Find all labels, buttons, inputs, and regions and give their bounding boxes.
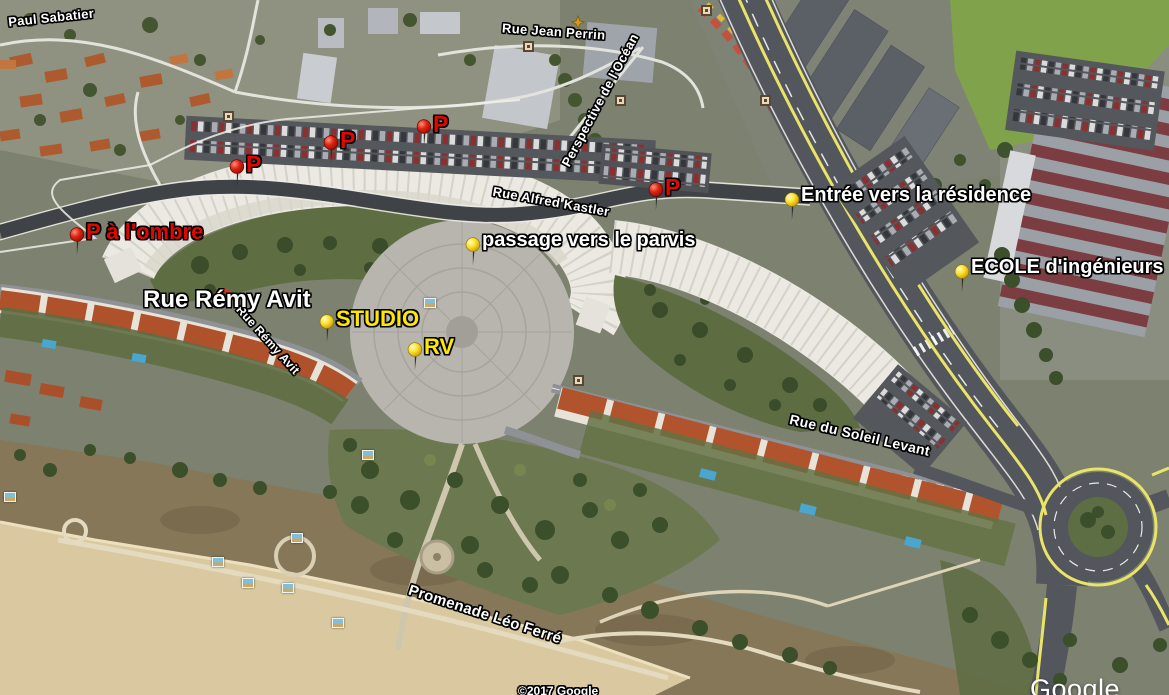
photo-icon[interactable] [362,450,374,460]
placemark-passage[interactable]: passage vers le parvis [463,237,483,267]
placemark-entree-residence[interactable]: Entrée vers la résidence [782,192,802,222]
place-label-rue-remy-avit: Rue Rémy Avit [143,286,311,314]
placemark-label: P [665,174,680,201]
poi-square-icon[interactable] [760,95,771,106]
landmark-icon[interactable] [571,15,585,29]
poi-square-icon[interactable] [573,375,584,386]
red-pushpin-icon [646,182,666,212]
placemark-ecole-ingenieurs[interactable]: ECOLE d'ingénieurs [952,264,972,294]
satellite-map[interactable]: Paul Sabatier Rue Jean Perrin Perspectiv… [0,0,1169,695]
placemark-label: STUDIO [336,306,419,332]
copyright-attribution: ©2017 Google [518,684,598,695]
photo-icon[interactable] [424,298,436,308]
placemark-label: P à l'ombre [86,219,203,245]
placemark-label: P [340,127,355,154]
yellow-pushpin-icon [405,342,425,372]
yellow-pushpin-icon [782,192,802,222]
yellow-pushpin-icon [317,314,337,344]
photo-icon[interactable] [291,533,303,543]
placemark-rv[interactable]: RV [405,342,425,372]
placemark-studio[interactable]: STUDIO [317,314,337,344]
yellow-pushpin-icon [952,264,972,294]
red-pushpin-icon [414,119,434,149]
placemark-label: P [246,151,261,178]
photo-icon[interactable] [4,492,16,502]
placemark-parking-4[interactable]: P [646,182,666,212]
placemark-parking-ombre[interactable]: P à l'ombre [67,227,87,257]
placemark-label: RV [424,334,454,360]
red-pushpin-icon [321,135,341,165]
placemark-parking-3[interactable]: P [414,119,434,149]
placemark-parking-1[interactable]: P [227,159,247,189]
photo-icon[interactable] [212,557,224,567]
placemark-label: ECOLE d'ingénieurs [971,256,1164,279]
photo-icon[interactable] [332,618,344,628]
poi-square-icon[interactable] [223,111,234,122]
photo-icon[interactable] [242,578,254,588]
google-earth-watermark: Google Earth [1030,674,1169,695]
red-pushpin-icon [227,159,247,189]
placemark-label: P [433,111,448,138]
poi-square-icon[interactable] [701,5,712,16]
poi-square-icon[interactable] [615,95,626,106]
photo-icon[interactable] [282,583,294,593]
poi-square-icon[interactable] [523,41,534,52]
placemark-parking-2[interactable]: P [321,135,341,165]
yellow-pushpin-icon [463,237,483,267]
placemark-label: Entrée vers la résidence [801,184,1031,207]
red-pushpin-icon [67,227,87,257]
satellite-imagery[interactable] [0,0,1169,695]
placemark-label: passage vers le parvis [482,229,695,252]
